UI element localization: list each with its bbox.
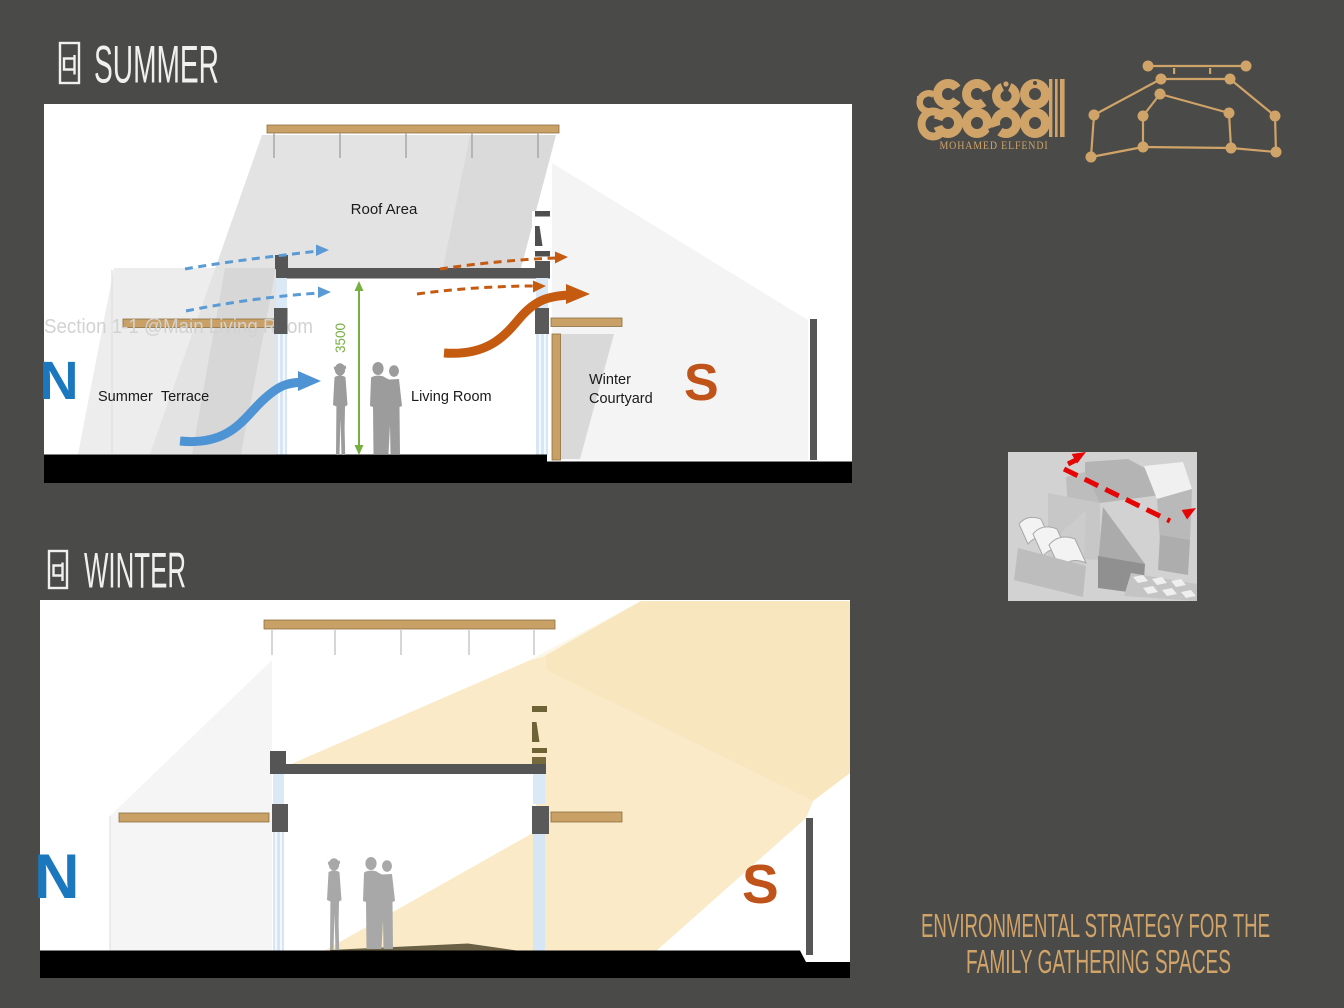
svg-text:ENVIRONMENTAL STRATEGY FOR THE: ENVIRONMENTAL STRATEGY FOR THE bbox=[921, 907, 1270, 944]
svg-text:N: N bbox=[34, 842, 80, 912]
svg-text:WINTER: WINTER bbox=[84, 543, 186, 599]
svg-text:S: S bbox=[742, 853, 779, 915]
svg-text:SUMMER: SUMMER bbox=[94, 36, 219, 95]
svg-text:3500: 3500 bbox=[333, 323, 348, 353]
svg-text:Section 1-1 @Main Living Room: Section 1-1 @Main Living Room bbox=[44, 315, 313, 338]
svg-text:Courtyard: Courtyard bbox=[589, 391, 653, 407]
svg-text:FAMILY GATHERING SPACES: FAMILY GATHERING SPACES bbox=[966, 943, 1231, 980]
svg-text:Winter: Winter bbox=[589, 372, 631, 388]
svg-text:Roof Area: Roof Area bbox=[351, 201, 418, 218]
svg-text:Living Room: Living Room bbox=[411, 389, 492, 405]
svg-text:N: N bbox=[40, 351, 79, 411]
svg-text:Summer Terrace: Summer Terrace bbox=[98, 389, 209, 405]
svg-text:MOHAMED ELFENDI: MOHAMED ELFENDI bbox=[940, 140, 1049, 152]
svg-text:S: S bbox=[684, 354, 719, 412]
